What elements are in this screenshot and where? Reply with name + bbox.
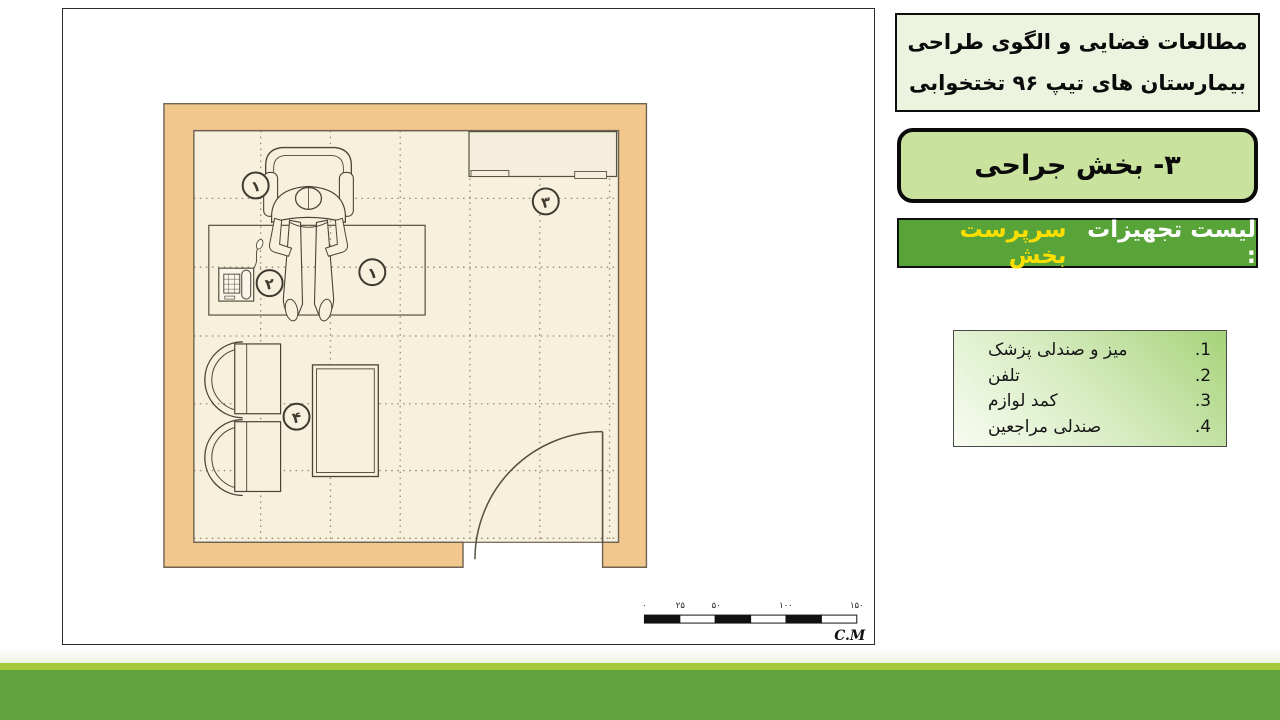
equipment-bar: لیست تجهیزات : سرپرست بخش — [897, 218, 1258, 268]
section-box: ۳- بخش جراحی — [897, 128, 1258, 203]
item-label: کمد لوازم — [962, 391, 1188, 411]
item-label: میز و صندلی پزشک — [962, 340, 1188, 360]
item-number: 3. — [1188, 391, 1218, 411]
side-table — [312, 365, 378, 477]
title-line-2: بیمارستان های تیپ ۹۶ تختخوابی — [909, 63, 1246, 104]
item-number: 4. — [1188, 417, 1218, 437]
callout-doctor-chair: ۱ — [243, 172, 269, 198]
bottom-accent-strip — [0, 663, 1280, 670]
scale-tick-50: ۵۰ — [712, 600, 721, 610]
list-item: 4. صندلی مراجعین — [962, 417, 1218, 437]
slide: ۱ ۱ ۲ ۳ ۴ — [0, 0, 1280, 720]
scale-tick-100: ۱۰۰ — [779, 600, 793, 610]
list-item: 2. تلفن — [962, 366, 1218, 386]
list-item: 1. میز و صندلی پزشک — [962, 340, 1218, 360]
callout-visitor-chairs: ۴ — [284, 404, 310, 430]
floor-plan-svg: ۱ ۱ ۲ ۳ ۴ — [63, 9, 874, 644]
equipment-bar-prefix: لیست تجهیزات : — [1075, 217, 1256, 269]
scale-unit: C.M — [834, 628, 866, 644]
scale-tick-150: ۱۵۰ — [850, 600, 864, 610]
item-label: صندلی مراجعین — [962, 417, 1188, 437]
bottom-band — [0, 670, 1280, 720]
item-label: تلفن — [962, 366, 1188, 386]
floor-plan-panel: ۱ ۱ ۲ ۳ ۴ — [62, 8, 875, 645]
callout-desk: ۱ — [359, 259, 385, 285]
cabinet — [469, 132, 617, 179]
item-number: 1. — [1188, 340, 1218, 360]
equipment-bar-room-name: سرپرست بخش — [899, 217, 1066, 269]
scale-tick-25: ۲۵ — [676, 600, 686, 610]
callout-cabinet: ۳ — [533, 188, 559, 214]
title-line-1: مطالعات فضایی و الگوی طراحی — [908, 22, 1248, 63]
equipment-list-box: 1. میز و صندلی پزشک 2. تلفن 3. کمد لوازم… — [953, 330, 1227, 447]
bottom-fade-strip — [0, 648, 1280, 663]
header-title-box: مطالعات فضایی و الگوی طراحی بیمارستان ها… — [895, 13, 1260, 112]
scale-bar: ۰ ۲۵ ۵۰ ۱۰۰ ۱۵۰ C.M — [642, 600, 866, 644]
section-label: ۳- بخش جراحی — [974, 150, 1181, 181]
list-item: 3. کمد لوازم — [962, 391, 1218, 411]
item-number: 2. — [1188, 366, 1218, 386]
callout-phone: ۲ — [257, 270, 283, 296]
scale-tick-0: ۰ — [642, 600, 647, 610]
